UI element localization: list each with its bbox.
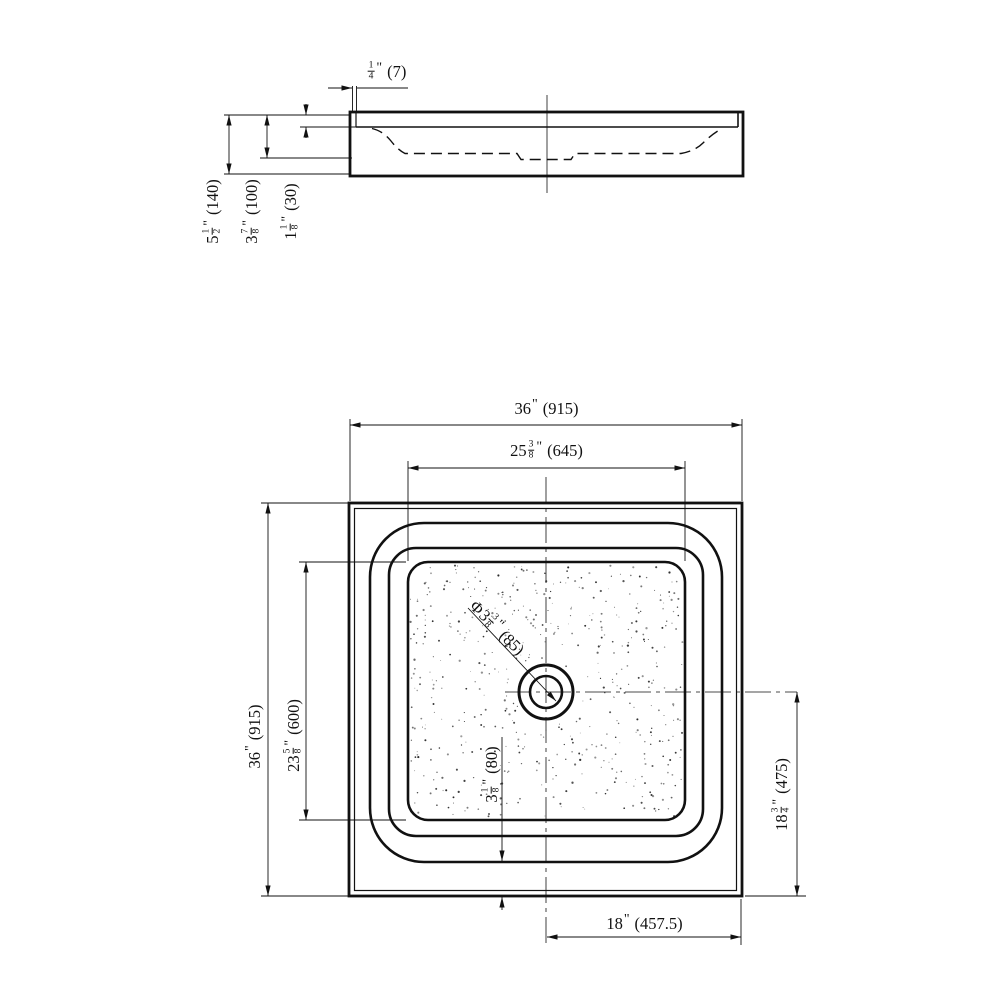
dim-label-lip-thickness: 14"(7) xyxy=(366,61,407,83)
dim-label-floor-width: 2538"(645) xyxy=(509,440,583,462)
drawing-page: 14"(7) 512"(140) 378"(100) 118"(30) 36"(… xyxy=(0,0,1000,1000)
dim-label-drain-offset-horizontal: 18"(457.5) xyxy=(605,916,682,933)
dim-label-rim-height: 118"(30) xyxy=(280,183,302,240)
dim-label-floor-depth: 2358"(600) xyxy=(283,699,305,773)
side-view xyxy=(350,95,743,193)
dim-label-apron-width: 318"(80) xyxy=(481,746,503,803)
side-outer-profile xyxy=(350,112,743,176)
side-view-dimensions xyxy=(224,86,408,174)
plan-view xyxy=(349,477,797,946)
dim-label-drain-offset-vertical: 1834"(475) xyxy=(771,758,793,832)
dim-label-total-height: 512"(140) xyxy=(202,179,224,244)
dim-label-overall-width: 36"(915) xyxy=(514,401,579,418)
dim-label-basin-depth: 378"(100) xyxy=(241,179,263,244)
dim-label-overall-depth: 36"(915) xyxy=(247,705,264,770)
drawing-canvas xyxy=(0,0,1000,1000)
